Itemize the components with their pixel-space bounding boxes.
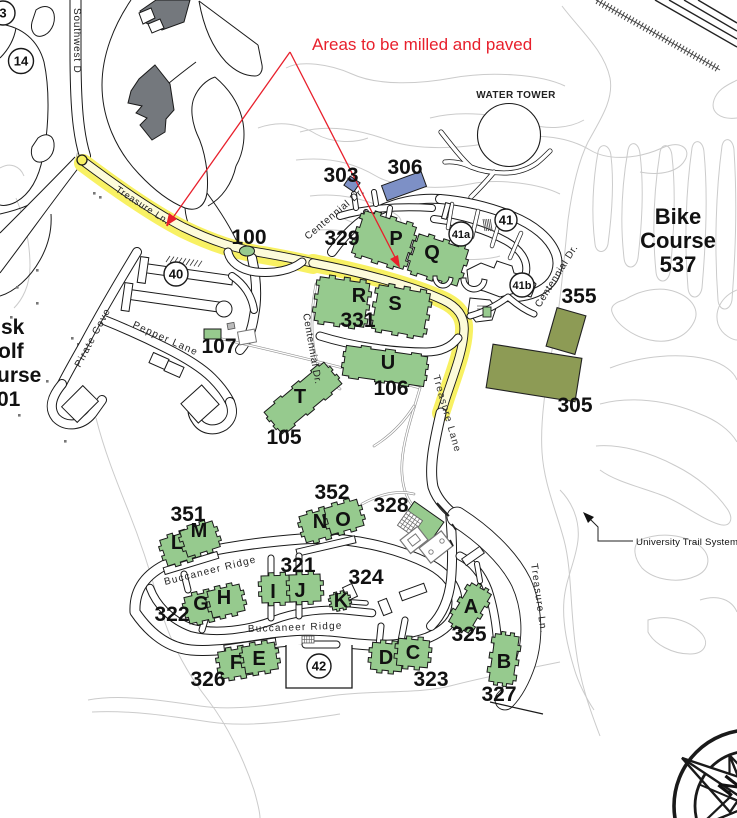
svg-text:323: 323 [413,668,448,691]
svg-text:N: N [313,511,327,533]
svg-text:01: 01 [0,388,21,411]
svg-text:Q: Q [424,242,440,264]
svg-text:U: U [381,352,395,374]
svg-text:S: S [388,293,401,315]
svg-text:C: C [406,642,420,664]
svg-text:I: I [270,581,276,603]
svg-text:D: D [379,647,393,669]
svg-text:321: 321 [280,554,315,577]
svg-text:326: 326 [190,668,225,691]
svg-text:352: 352 [314,481,349,504]
svg-text:B: B [497,651,511,673]
svg-text:324: 324 [348,566,383,589]
svg-text:urse: urse [0,364,41,387]
svg-text:14: 14 [14,54,29,69]
svg-text:olf: olf [0,340,25,363]
svg-text:331: 331 [340,309,375,332]
svg-text:H: H [217,587,231,609]
svg-text:327: 327 [481,683,516,706]
svg-text:J: J [294,580,305,602]
svg-text:107: 107 [201,335,236,358]
svg-text:305: 305 [557,394,592,417]
svg-text:355: 355 [561,285,596,308]
svg-text:Southwest D: Southwest D [71,8,82,74]
svg-text:sk: sk [1,316,25,339]
svg-text:3: 3 [0,6,7,21]
svg-text:41b: 41b [513,280,532,292]
svg-text:E: E [252,648,265,670]
svg-text:42: 42 [312,659,326,674]
svg-text:325: 325 [451,623,486,646]
svg-text:A: A [464,596,478,618]
svg-text:Course: Course [640,228,716,253]
svg-text:41: 41 [499,213,513,228]
svg-text:40: 40 [169,267,183,282]
svg-text:328: 328 [373,494,408,517]
svg-text:K: K [334,590,349,612]
svg-text:Bike: Bike [655,204,701,229]
svg-text:329: 329 [324,227,359,250]
svg-text:WATER TOWER: WATER TOWER [476,90,556,101]
svg-text:F: F [230,652,242,674]
svg-text:322: 322 [154,603,189,626]
svg-text:O: O [335,509,351,531]
svg-text:303: 303 [323,164,358,187]
svg-text:R: R [352,285,367,307]
svg-text:537: 537 [660,252,697,277]
svg-text:M: M [191,520,208,542]
svg-text:T: T [294,386,306,408]
svg-text:Areas to be milled and paved: Areas to be milled and paved [312,35,532,54]
svg-text:100: 100 [231,226,266,249]
svg-text:106: 106 [373,377,408,400]
svg-text:41a: 41a [452,229,471,241]
svg-text:L: L [171,532,183,554]
svg-text:306: 306 [387,156,422,179]
svg-text:105: 105 [266,426,301,449]
svg-text:G: G [193,593,209,615]
svg-text:P: P [389,228,402,250]
svg-text:University Trail System: University Trail System [636,537,737,548]
